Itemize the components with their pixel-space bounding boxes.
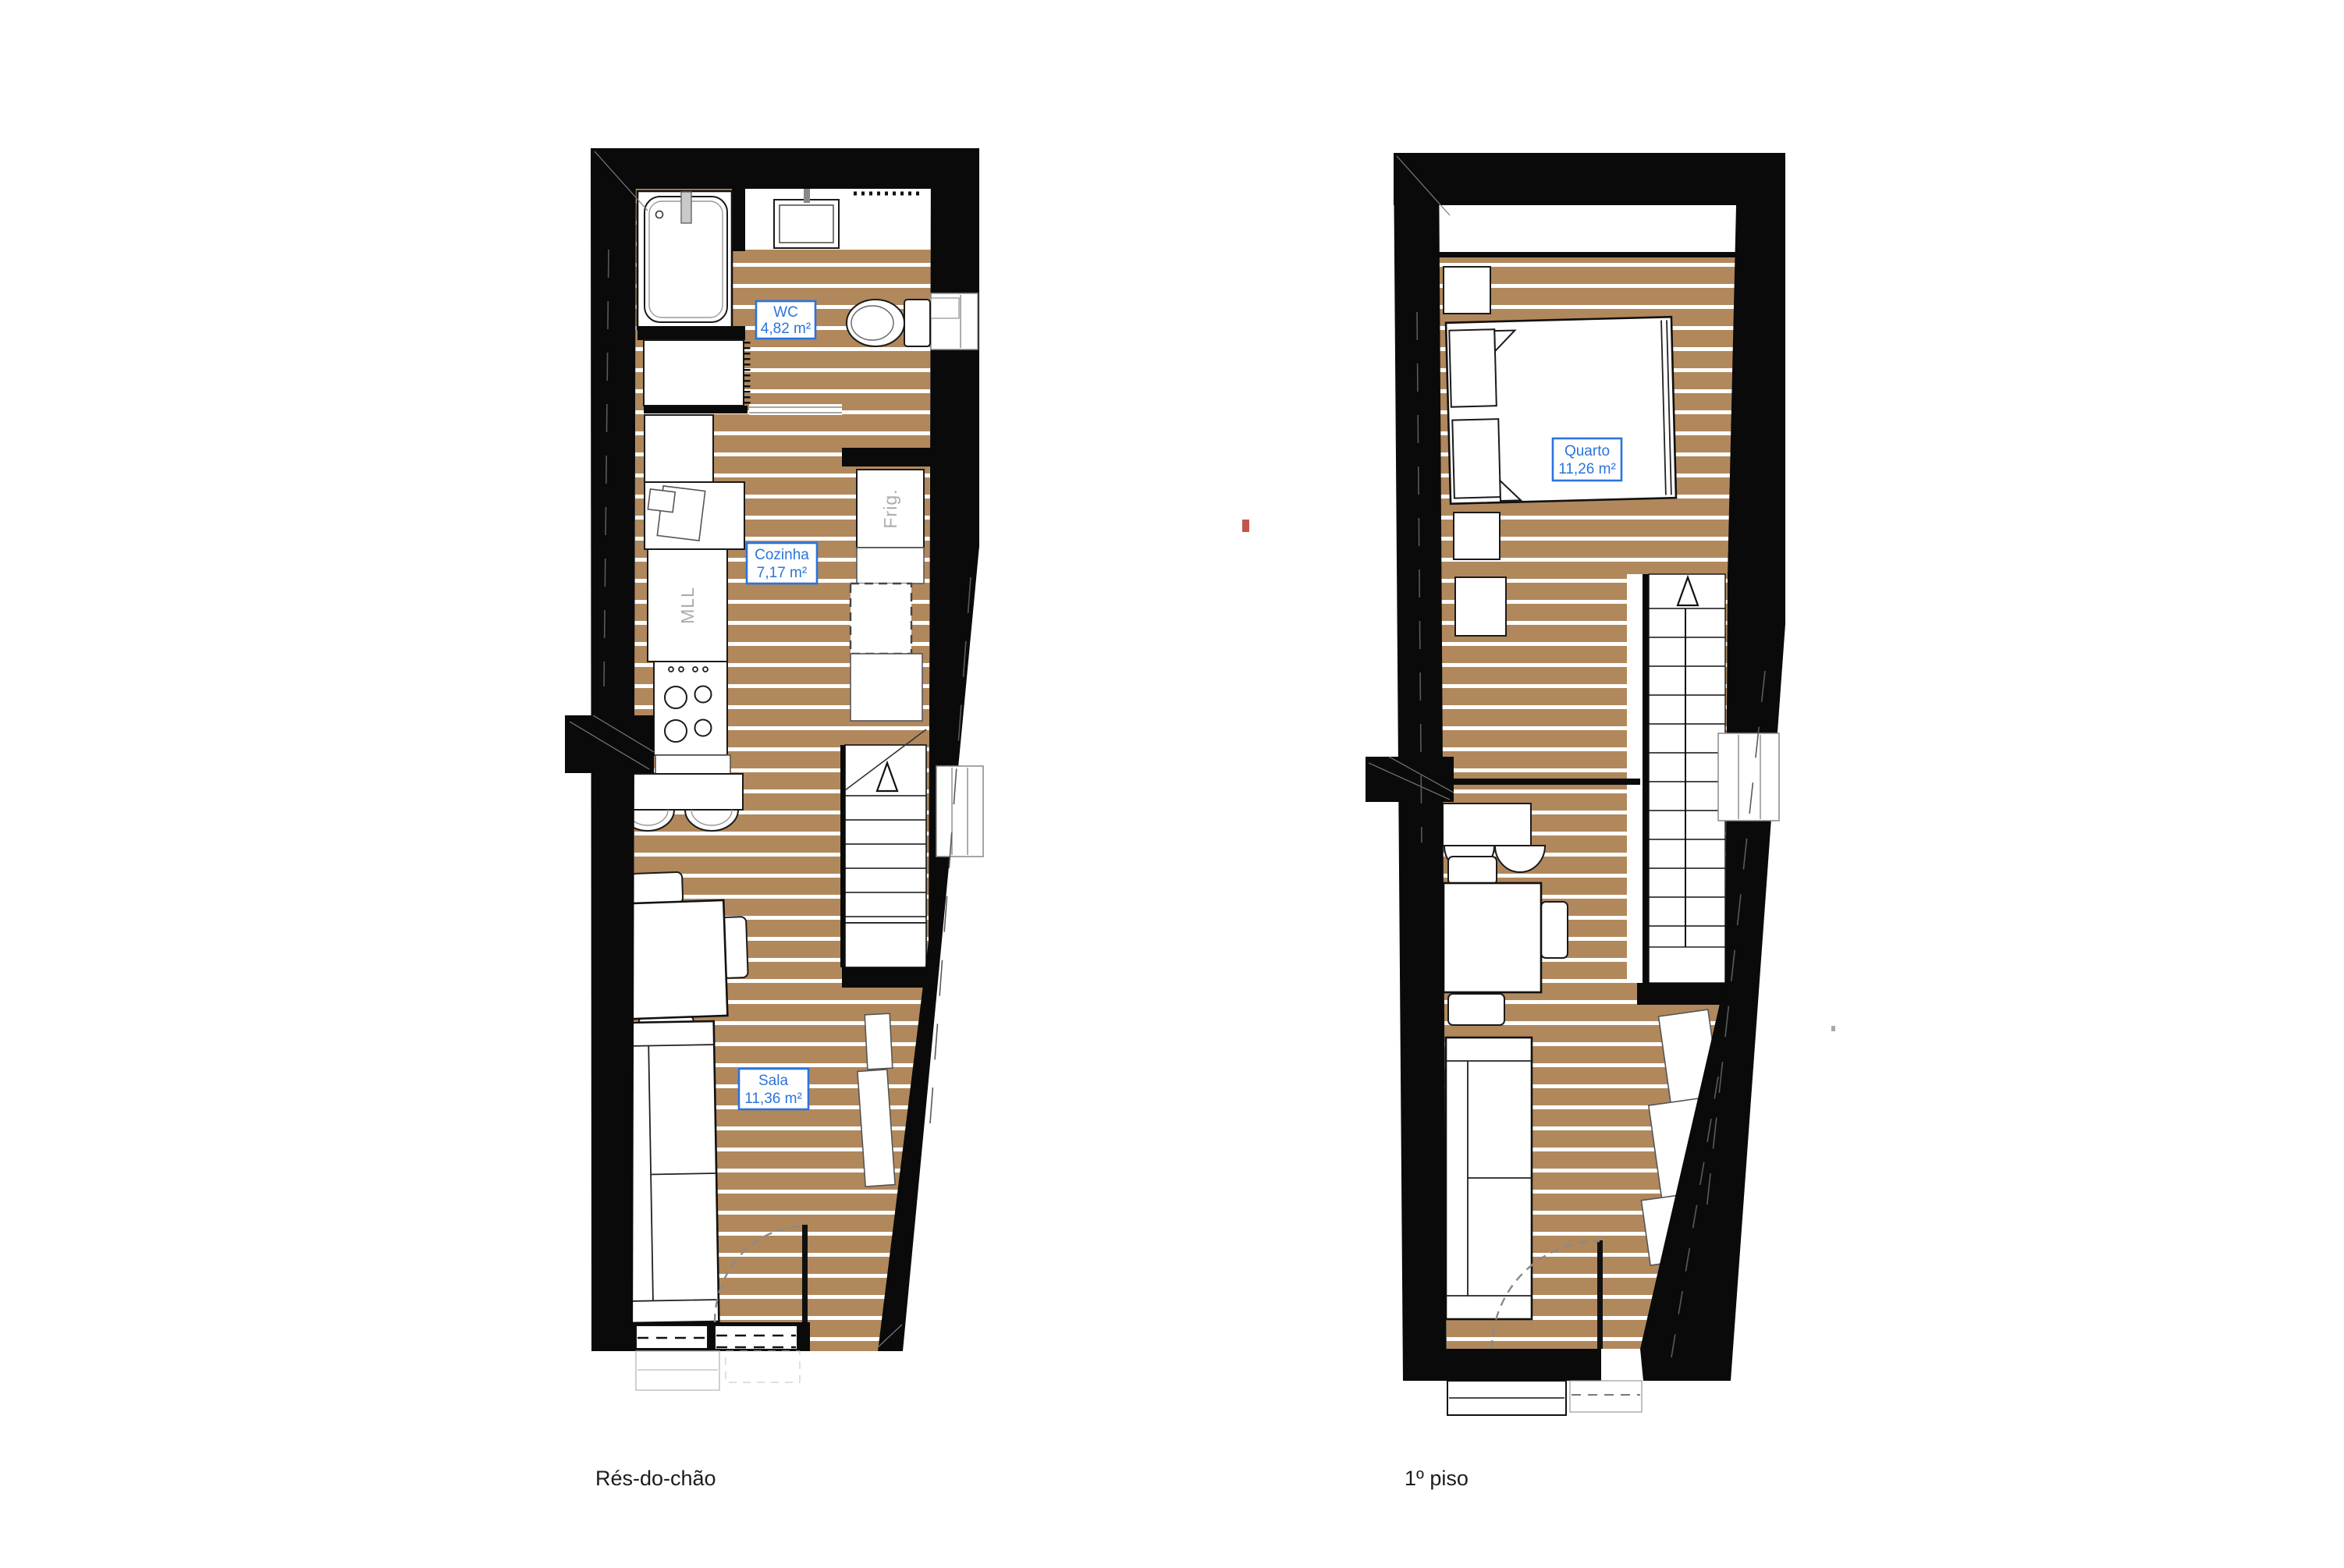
- bottom-wall: [1403, 1349, 1601, 1381]
- svg-text:Frig.: Frig.: [880, 489, 900, 529]
- bathtub: [637, 191, 732, 329]
- svg-text:7,17 m²: 7,17 m²: [757, 565, 807, 581]
- kitchen-sink-counter: [645, 482, 744, 549]
- top-wall: [593, 148, 979, 189]
- upper-void-band: [1439, 205, 1736, 252]
- door-leaf: [802, 1225, 808, 1322]
- washing-machine: MLL: [648, 549, 727, 662]
- sink-faucet-icon: [804, 189, 810, 203]
- wc-kitchen-wall-right: [842, 448, 931, 466]
- svg-text:Quarto: Quarto: [1564, 443, 1610, 459]
- wc-window: [931, 293, 978, 349]
- ground-floor-caption: Rés-do-chão: [595, 1467, 716, 1491]
- burner-icon: [695, 720, 712, 736]
- room-label-quarto: Quarto 11,26 m²: [1553, 438, 1621, 481]
- chair: [630, 872, 683, 905]
- kitchen-counter-lower: [655, 755, 730, 775]
- wc-lower-wall: [637, 326, 745, 340]
- kitchen-counter-right: [857, 548, 924, 584]
- burner-icon: [665, 720, 687, 742]
- toilet: [847, 300, 930, 346]
- svg-text:11,26 m²: 11,26 m²: [1558, 461, 1616, 477]
- stairs-ground: [840, 729, 926, 988]
- landing-divider-wall: [1440, 779, 1640, 785]
- chair: [1448, 857, 1497, 885]
- door-leaf: [1597, 1240, 1603, 1349]
- svg-text:11,36 m²: 11,36 m²: [744, 1091, 802, 1107]
- burner-icon: [665, 686, 687, 708]
- stairs-first: [1627, 574, 1729, 1005]
- nightstand: [1454, 513, 1500, 559]
- pillow: [1452, 419, 1501, 498]
- wc-kitchen-wall-left: [644, 406, 748, 413]
- stair-window: [936, 766, 983, 857]
- wc-sliding-door: [749, 404, 842, 415]
- stove: [654, 662, 727, 755]
- room-label-wc: WC 4,82 m²: [756, 301, 815, 339]
- room-label-cozinha: Cozinha 7,17 m²: [747, 543, 817, 584]
- stair-landing: [845, 923, 926, 967]
- burner-icon: [695, 686, 712, 703]
- svg-text:MLL: MLL: [677, 587, 698, 624]
- pillow: [1449, 329, 1497, 406]
- sofa: [627, 1021, 719, 1323]
- entry-threshold: [636, 1325, 800, 1390]
- red-artifact-mark: [1242, 520, 1249, 532]
- ground-floor-plan: MLL Frig.: [562, 140, 1014, 1451]
- svg-text:WC: WC: [773, 304, 798, 321]
- stair-landing: [1649, 947, 1725, 983]
- closet-shelf: [865, 1013, 893, 1070]
- dishwasher-dashed: [851, 584, 911, 654]
- bathtub-faucet-icon: [681, 192, 691, 223]
- fridge: Frig.: [857, 470, 924, 548]
- wc-cabinet: [644, 340, 744, 406]
- svg-text:4,82 m²: 4,82 m²: [761, 321, 811, 337]
- chair: [1541, 902, 1568, 958]
- entry-threshold: [1447, 1381, 1642, 1415]
- kitchen-counter-upper: [645, 415, 713, 482]
- wc-divider-wall: [732, 189, 745, 251]
- band-divider-line: [1439, 252, 1736, 257]
- floor-plan-sheet: MLL Frig.: [0, 0, 2344, 1568]
- chair: [1448, 994, 1504, 1025]
- kitchen-counter-right-lower: [851, 654, 922, 721]
- bedroom-cabinet: [1455, 577, 1506, 636]
- top-wall: [1394, 153, 1785, 205]
- svg-text:Sala: Sala: [758, 1073, 788, 1089]
- table: [1444, 883, 1541, 992]
- nightstand: [1444, 267, 1490, 314]
- first-floor-plan: Quarto 11,26 m²: [1366, 140, 1818, 1451]
- room-label-sala: Sala 11,36 m²: [739, 1069, 808, 1109]
- stair-window: [1718, 733, 1779, 821]
- gray-artifact-dot: [1831, 1026, 1835, 1031]
- svg-text:Cozinha: Cozinha: [755, 547, 809, 563]
- first-floor-caption: 1º piso: [1405, 1467, 1469, 1491]
